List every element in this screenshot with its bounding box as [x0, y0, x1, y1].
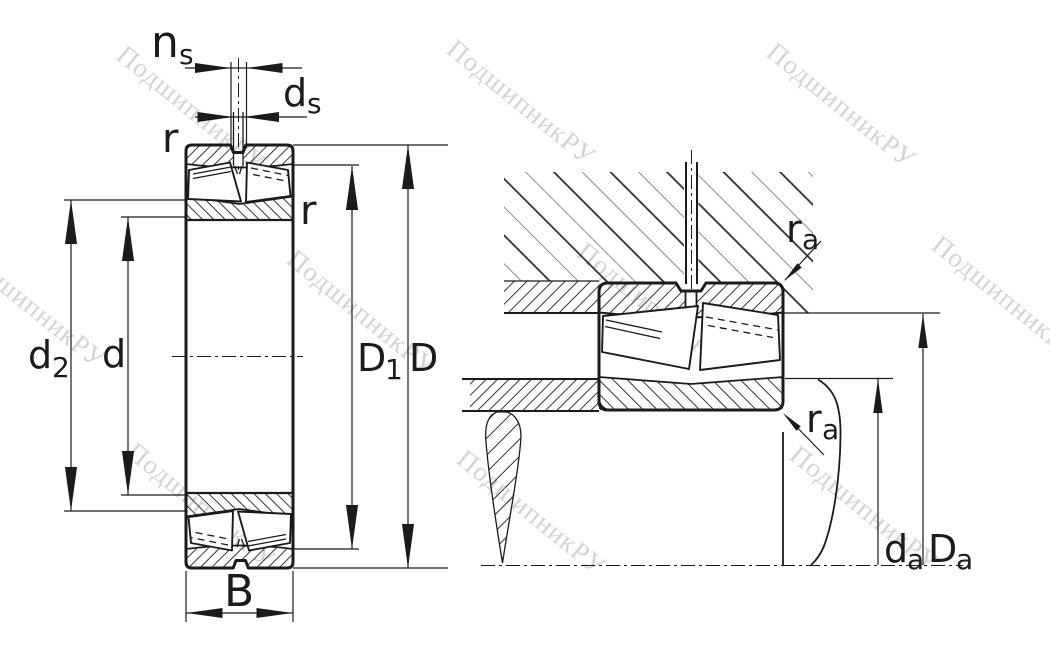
inner-ring-hatch [599, 377, 783, 410]
watermark-text: ПодшипникРУ [761, 36, 921, 174]
label-Da-sub: a [956, 543, 973, 576]
label-d2: d [28, 333, 52, 377]
label-ra-bottom: r [806, 397, 822, 441]
label-D1: D [357, 336, 386, 380]
label-da-sub: a [907, 543, 924, 576]
watermark-text: ПодшипникРУ [926, 229, 1050, 367]
label-ns-sub: s [179, 38, 194, 71]
label-D1-sub: 1 [385, 353, 403, 386]
label-ra-bottom-sub: a [822, 413, 839, 446]
label-ds-sub: s [307, 87, 322, 120]
label-ns: n [151, 17, 179, 68]
label-B: B [224, 566, 254, 617]
bearing-drawing-page: ПодшипникРУ ПодшипникРУ ПодшипникРУ Подш… [0, 0, 1050, 650]
label-d: d [102, 332, 126, 376]
label-da: d [884, 527, 908, 571]
label-Da: D [928, 527, 957, 571]
label-ra-top: r [786, 207, 802, 251]
watermark-text: ПодшипникРУ [451, 443, 611, 581]
label-D: D [409, 336, 438, 380]
roller-left [602, 306, 698, 369]
mounted-bearing-section [599, 283, 783, 410]
oil-hole-gap [234, 153, 244, 167]
technical-drawing-canvas: ПодшипникРУ ПодшипникРУ ПодшипникРУ Подш… [0, 0, 1050, 650]
shaft-shoulder-hatch [470, 379, 599, 411]
watermark-text: ПодшипникРУ [441, 33, 601, 171]
label-ds: d [283, 71, 307, 115]
roller-left [188, 163, 241, 202]
housing-seat-hatch [504, 281, 599, 313]
label-r-outer: r [162, 116, 179, 162]
label-d2-sub: 2 [52, 351, 70, 384]
label-r-inner: r [300, 188, 317, 234]
label-ra-top-sub: a [802, 223, 819, 256]
